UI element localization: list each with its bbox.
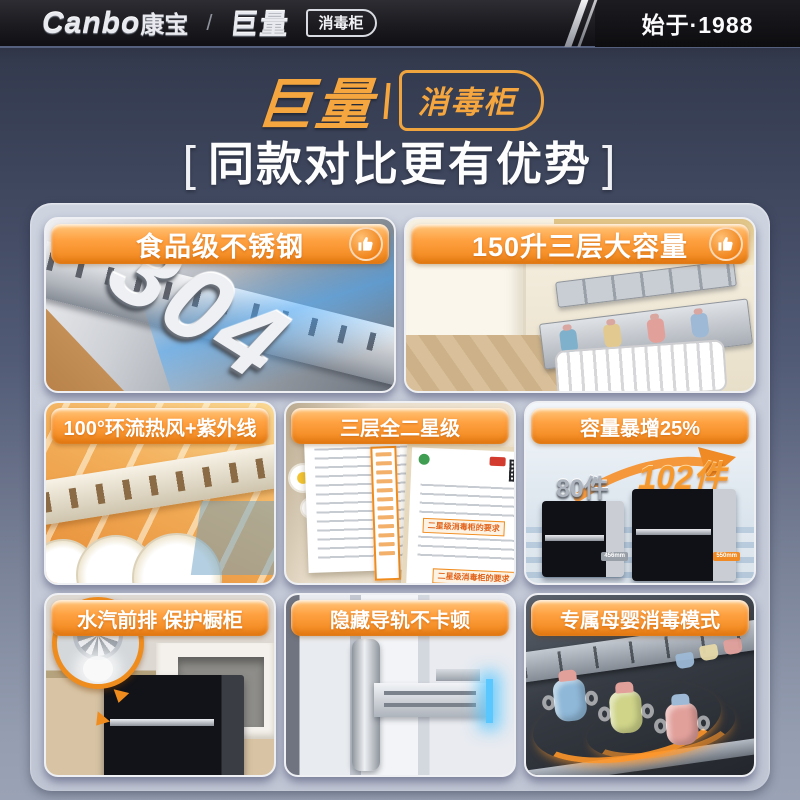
card-header-hot-air-uv: 100°环流热风+紫外线 — [51, 408, 269, 444]
baby-cup — [699, 644, 719, 662]
logo-latin: Canbo — [42, 7, 140, 40]
baby-cup — [675, 652, 695, 670]
card-label: 专属母婴消毒模式 — [560, 604, 720, 633]
bottle-cap — [693, 308, 703, 315]
feature-card-panel: 304 食品级不锈钢 — [30, 203, 770, 791]
highlighted-result-column — [370, 446, 401, 581]
badge-divider-bar — [383, 83, 390, 119]
baby-bottle — [646, 318, 666, 344]
baby-bottle — [609, 690, 644, 734]
card-front-steam-vent: 水汽前排 保护橱柜 — [44, 593, 276, 777]
header-since-segment: 始于·1988 — [595, 0, 800, 47]
card-header-hidden-rail: 隐藏导轨不卡顿 — [291, 600, 509, 636]
telescopic-rail-arm — [374, 683, 490, 717]
baby-cup — [723, 638, 743, 656]
cert-table-rows — [417, 536, 516, 567]
cabinet-interior-panel — [191, 501, 276, 575]
series-name: 巨量 — [228, 3, 292, 43]
series-category-pill: 消毒柜 — [306, 9, 377, 37]
divider-slash: / — [206, 10, 212, 36]
card-hot-air-uv: 100°环流热风+紫外线 — [44, 401, 276, 585]
cabinet-handle — [636, 529, 711, 535]
card-label: 隐藏导轨不卡顿 — [330, 604, 470, 633]
thumbs-up-icon — [349, 227, 383, 261]
bracket-left: [ — [173, 138, 208, 191]
promo-page: { "header": { "logo_latin": "Canbo", "lo… — [0, 0, 800, 800]
large-cabinet: 550mm — [632, 489, 736, 581]
baby-bottle — [665, 702, 700, 746]
certificate-document: 二星级消毒柜的要求 二星级消毒柜的要求 — [401, 442, 516, 585]
card-label: 容量暴增25% — [580, 412, 700, 441]
bottle-cap — [562, 324, 572, 331]
card-header-baby-mode: 专属母婴消毒模式 — [531, 600, 749, 636]
card-150l-capacity: 150升三层大容量 — [404, 217, 756, 393]
brand-logo: Canbo康宝 — [42, 5, 188, 41]
header-divider-slashes — [573, 0, 589, 47]
card-label: 三层全二星级 — [340, 412, 460, 441]
rail-bracket-step — [436, 669, 480, 681]
page-title-text: 同款对比更有优势 — [208, 138, 592, 190]
since-1988-label: 始于·1988 — [642, 6, 754, 40]
bottle-cap — [650, 313, 660, 320]
blue-glow-highlight — [486, 679, 493, 723]
card-food-grade-steel: 304 食品级不锈钢 — [44, 217, 396, 393]
card-row-3: 水汽前排 保护橱柜 隐藏导轨不卡顿 — [44, 593, 756, 777]
baby-bottle — [552, 677, 588, 722]
cabinet-handle — [545, 535, 604, 541]
width-tag-small: 456mm — [601, 552, 628, 561]
card-two-star-certified: 二星级消毒柜的要求 二星级消毒柜的要求 三层全二星级 — [284, 401, 516, 585]
black-disinfection-cabinet — [104, 675, 244, 777]
card-label: 水汽前排 保护橱柜 — [77, 604, 243, 633]
steam-cloud — [83, 656, 113, 682]
card-label: 150升三层大容量 — [472, 225, 688, 264]
card-baby-mode: 专属母婴消毒模式 — [524, 593, 756, 777]
hero-category-pill: 消毒柜 — [399, 70, 544, 131]
baby-bottle — [603, 323, 623, 349]
top-cutlery-drawer — [555, 260, 737, 308]
bottle-cap — [606, 319, 616, 326]
card-header-150l: 150升三层大容量 — [411, 224, 749, 264]
card-label: 100°环流热风+紫外线 — [63, 412, 256, 441]
page-title: [同款对比更有优势] — [0, 128, 800, 194]
card-header-capacity-boost: 容量暴增25% — [531, 408, 749, 444]
card-label: 食品级不锈钢 — [136, 225, 304, 264]
report-table-rows — [314, 445, 416, 564]
highlight-box-two-star: 二星级消毒柜的要求 — [422, 518, 505, 537]
card-header-steam-vent: 水汽前排 保护橱柜 — [51, 600, 269, 636]
card-header-food-grade-steel: 食品级不锈钢 — [51, 224, 389, 264]
red-stamp — [489, 457, 505, 467]
card-row-2: 100°环流热风+紫外线 — [44, 401, 756, 585]
qr-code — [509, 460, 516, 483]
small-cabinet: 456mm — [542, 501, 624, 577]
card-row-1: 304 食品级不锈钢 — [44, 217, 756, 393]
card-hidden-rail: 隐藏导轨不卡顿 — [284, 593, 516, 777]
cabinet-handle — [110, 719, 214, 726]
card-capacity-boost: 80件 102件 456mm 550mm 容量暴增25% — [524, 401, 756, 585]
green-cert-logo — [418, 454, 429, 465]
bracket-right: ] — [592, 138, 627, 191]
logo-chinese: 康宝 — [140, 12, 188, 39]
header-brand-group: Canbo康宝 / 巨量 消毒柜 — [0, 3, 573, 43]
thumbs-up-icon — [709, 227, 743, 261]
small-capacity-label: 80件 — [556, 469, 609, 505]
card-header-two-star: 三层全二星级 — [291, 408, 509, 444]
cert-table-rows — [419, 484, 516, 519]
baby-bottle — [690, 312, 710, 338]
top-header-bar: Canbo康宝 / 巨量 消毒柜 始于·1988 — [0, 0, 800, 48]
width-tag-large: 550mm — [713, 552, 740, 561]
highlight-box-two-star: 二星级消毒柜的要求 — [432, 568, 515, 585]
